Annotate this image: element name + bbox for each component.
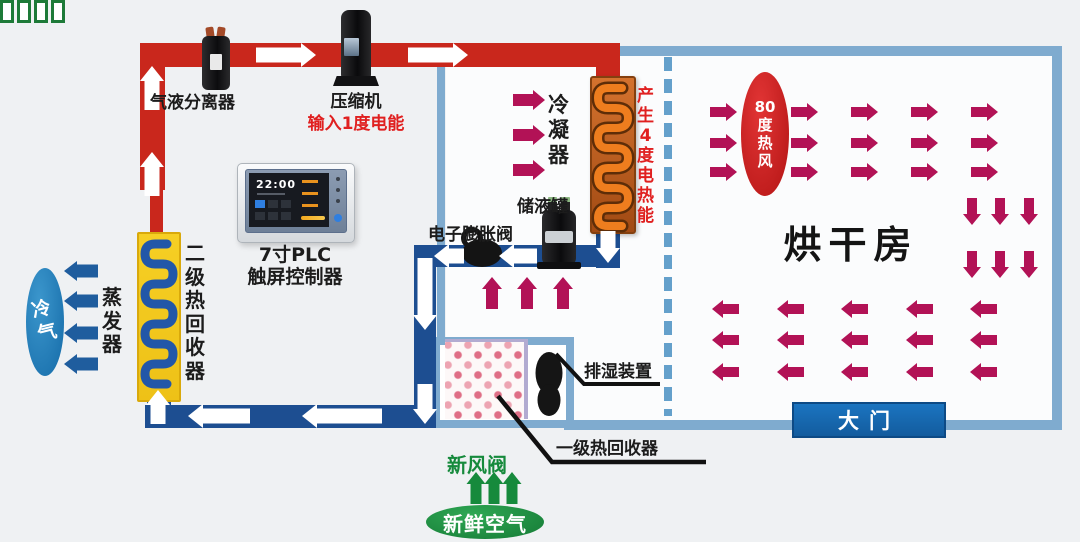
label-plc: 7寸PLC 触屏控制器 [228, 245, 362, 289]
label-plc-line1: 7寸PLC [259, 244, 331, 266]
compressor-nameplate [344, 38, 359, 56]
plc-side-button[interactable] [336, 188, 340, 192]
plc-progress-bar [301, 216, 325, 220]
plc-key[interactable] [281, 200, 291, 208]
evaporator-unit [137, 232, 181, 402]
label-gas-liquid-separator: 气液分离器 [150, 88, 235, 113]
label-fresh-air: 新鲜空气 [443, 508, 527, 537]
label-dehumidifier: 排湿装置 [584, 357, 652, 382]
plc-subline [257, 193, 285, 195]
cold-pipe-middle-vertical [414, 245, 436, 421]
door-sign: 大门 [792, 402, 946, 438]
label-door: 大门 [838, 405, 900, 435]
label-hot-air: 80度热风 [755, 98, 776, 170]
fresh-air-oval: 新鲜空气 [426, 505, 544, 539]
plc-power-button[interactable] [334, 214, 342, 222]
room-wall-top [620, 46, 1062, 56]
plc-key[interactable] [281, 212, 291, 220]
label-fresh-air-valve: 新风阀 [447, 449, 507, 478]
room-wall-right [1052, 46, 1062, 430]
separator-label-patch [210, 54, 222, 70]
hot-air-oval: 80度热风 [741, 72, 789, 196]
plc-key[interactable] [255, 200, 265, 208]
plc-readout [302, 204, 318, 207]
label-condenser: 冷凝器 [548, 93, 569, 167]
label-drying-room: 烘干房 [756, 214, 946, 269]
label-expansion-valve: 电子膨胀阀 [428, 220, 513, 245]
cold-pipe-middle-horizontal [414, 245, 620, 267]
cold-air-oval: 冷气 [26, 268, 64, 376]
hot-pipe-to-evaporator [150, 183, 163, 238]
label-liquid-tank: 储液罐 [517, 192, 568, 217]
tank-base [537, 262, 581, 269]
tank-band [545, 231, 573, 243]
primary-heat-recovery-panel [445, 339, 528, 419]
plc-readout [302, 192, 318, 195]
fresh-air-valve-device [0, 0, 65, 23]
plc-clock: 22:00 [256, 178, 296, 191]
plc-side-button[interactable] [336, 177, 340, 181]
plc-side-button[interactable] [336, 199, 340, 203]
label-condenser-energy: 产生4度电热能 [637, 86, 654, 226]
label-cold-air: 冷气 [30, 297, 60, 348]
machine-room-wall [437, 62, 445, 338]
plc-key[interactable] [255, 212, 265, 220]
label-evaporator: 蒸发器 [102, 286, 122, 357]
label-primary-heat-recovery: 一级热回收器 [556, 434, 658, 459]
label-secondary-heat-recovery: 二级热回收器 [185, 242, 205, 384]
label-plc-line2: 触屏控制器 [247, 266, 342, 288]
heat-pump-dryer-diagram: 22:00 气液分离器 压缩机 输入1度电能 7寸PLC 触屏控制器 电子膨胀阀… [0, 0, 1080, 542]
label-compressor-energy: 输入1度电能 [296, 109, 416, 134]
condenser-unit [590, 76, 636, 234]
plc-key[interactable] [268, 212, 278, 220]
cold-pipe-bottom-horizontal [145, 405, 436, 428]
compressor-base [333, 76, 379, 86]
plc-readout [302, 180, 318, 183]
cold-air-out-arrows [64, 261, 98, 374]
plc-key[interactable] [268, 200, 278, 208]
